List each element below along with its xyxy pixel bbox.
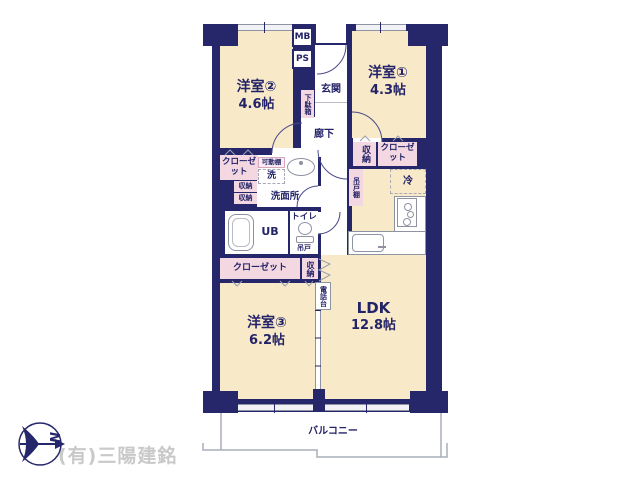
- hanging-door-label: 吊戸: [291, 244, 317, 253]
- company-credit: (有)三陽建銘: [58, 441, 177, 468]
- toilet-label: トイレ: [289, 212, 319, 223]
- corridor-label: 廊下: [304, 129, 344, 141]
- toilet-door-arc: [318, 212, 340, 234]
- genkan-label: 玄関: [315, 84, 347, 96]
- western1-area: 4.3帖: [370, 83, 406, 100]
- bifold-door-zigzag: [319, 259, 330, 281]
- sliding-door-ticks: [315, 338, 321, 366]
- western3-name: 洋室③: [247, 314, 287, 332]
- floorplan-image: MB PS 下駄箱 クローゼット 可動棚 収納 収納 収納 クローゼット 吊戸棚…: [0, 0, 640, 480]
- western3-area: 6.2帖: [249, 333, 285, 350]
- closet-w3-fold-marks: [232, 281, 290, 286]
- ldk-name: LDK: [357, 299, 391, 319]
- balcony-rail-outer: [203, 443, 447, 457]
- western3-label: 洋室③ 6.2帖: [219, 312, 315, 352]
- western1-label: 洋室① 4.3帖: [350, 62, 426, 102]
- closet-w2-fold-marks: [225, 150, 253, 155]
- balcony-label: バルコニー: [297, 425, 369, 438]
- hall-door-arc: [318, 150, 347, 179]
- ldk-area: 12.8帖: [351, 318, 396, 335]
- washroom-label: 洗面所: [255, 191, 315, 203]
- storage-fold-mark: [305, 281, 313, 286]
- western2-label: 洋室② 4.6帖: [219, 76, 294, 116]
- western2-area: 4.6帖: [238, 97, 274, 114]
- entrance-door-arc: [317, 45, 346, 74]
- unit-bath-label: UB: [255, 225, 285, 239]
- floorplan-symbols: [0, 0, 640, 480]
- folding-door-marks: [225, 136, 403, 286]
- western2-door-arc: [272, 123, 302, 153]
- partition-ticks: [315, 338, 321, 366]
- ldk-label: LDK 12.8帖: [321, 296, 426, 338]
- western1-name: 洋室①: [368, 64, 408, 82]
- western2-name: 洋室②: [237, 78, 277, 96]
